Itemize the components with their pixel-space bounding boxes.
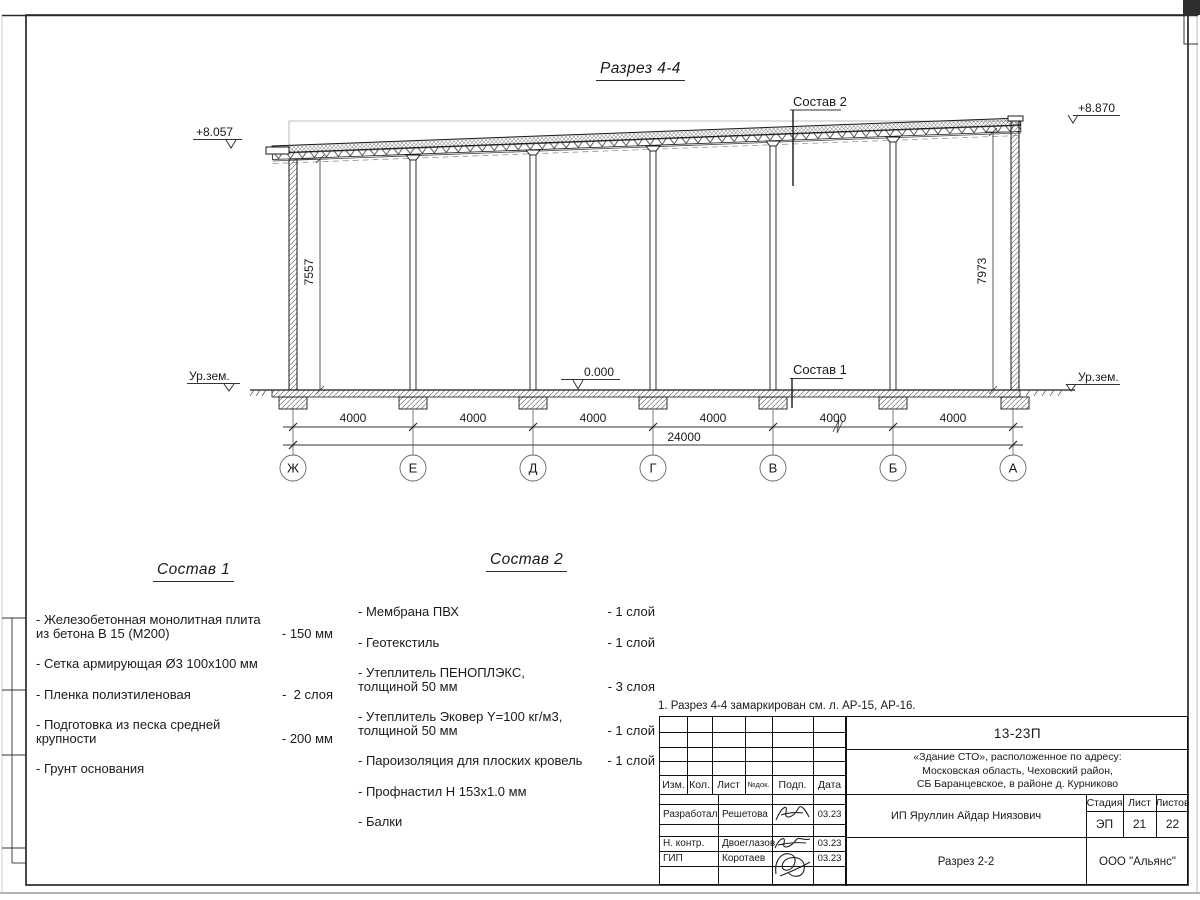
- svg-text:+8.057: +8.057: [196, 125, 233, 139]
- sostav2-heading: Состав 2: [486, 551, 567, 572]
- list-item: - Грунт основания: [36, 762, 333, 776]
- floor-slab: [250, 390, 1075, 409]
- layer-name: - Сетка армирующая Ø3 100х100 мм: [36, 657, 258, 671]
- layer-name: - Грунт основания: [36, 762, 144, 776]
- layer-qty: - 1 слой: [607, 636, 655, 650]
- parapet-cap: [1008, 116, 1023, 121]
- list-item: - Балки: [358, 815, 655, 829]
- title-block: Изм. Кол. Лист №док. Подп. Дата Разработ…: [659, 716, 1188, 885]
- list-item: - Железобетонная монолитная плита из бет…: [36, 613, 333, 640]
- dimension-chain: 4000 4000 4000 4000 4000 4000 24000: [283, 408, 1023, 456]
- list-header: Лист: [1123, 794, 1156, 811]
- layer-name: - Подготовка из песка средней крупности: [36, 718, 220, 745]
- rev-header-podp: Подп.: [772, 775, 813, 794]
- company-name: ООО "Альянс": [1086, 837, 1189, 886]
- level-mark-right: +8.870: [1068, 101, 1120, 123]
- left-margin-boxes: [2, 618, 26, 863]
- rev-header-list: Лист: [712, 775, 745, 794]
- layer-qty: - 200 мм: [282, 732, 333, 746]
- svg-text:Е: Е: [409, 461, 418, 476]
- roof-assembly: [272, 118, 1021, 164]
- callout-sostav1: Состав 1: [790, 362, 847, 408]
- svg-text:Д: Д: [529, 461, 538, 476]
- layer-name: - Утеплитель ПЕНОПЛЭКС, толщиной 50 мм: [358, 666, 525, 693]
- svg-text:4000: 4000: [820, 411, 847, 425]
- right-wall: [1011, 121, 1019, 390]
- signer-date: 03.23: [813, 836, 846, 851]
- svg-text:А: А: [1009, 461, 1018, 476]
- list-item: - Подготовка из песка средней крупности …: [36, 718, 333, 745]
- svg-text:4000: 4000: [460, 411, 487, 425]
- list-item: - Утеплитель Эковер Y=100 кг/м3, толщино…: [358, 710, 655, 737]
- svg-text:Ур.зем.: Ур.зем.: [1078, 370, 1119, 384]
- svg-text:Ур.зем.: Ур.зем.: [189, 369, 230, 383]
- layer-qty: - 1 слой: [607, 754, 655, 768]
- layer-name: - Мембрана ПВХ: [358, 605, 459, 619]
- rev-header-izm: Изм.: [660, 775, 687, 794]
- height-right-label: 7973: [975, 257, 989, 284]
- svg-text:Ж: Ж: [287, 461, 299, 476]
- svg-text:0.000: 0.000: [584, 365, 614, 379]
- sheet-number: 21: [1123, 811, 1156, 837]
- rev-header-kol: Кол.: [687, 775, 712, 794]
- layer-name: - Железобетонная монолитная плита из бет…: [36, 613, 261, 640]
- sheet-title: Разрез 2-2: [846, 837, 1086, 886]
- layer-name: - Пароизоляция для плоских кровель: [358, 754, 582, 768]
- layer-name: - Балки: [358, 815, 402, 829]
- list-item: - Геотекстиль - 1 слой: [358, 636, 655, 650]
- signer-role: Разработал: [660, 804, 721, 824]
- layer-name: - Утеплитель Эковер Y=100 кг/м3, толщино…: [358, 710, 562, 737]
- level-mark-zero: 0.000: [561, 365, 620, 389]
- sheets-total: 22: [1156, 811, 1189, 837]
- sostav2-list: - Мембрана ПВХ - 1 слой - Геотекстиль - …: [358, 605, 655, 846]
- list-item: - Пароизоляция для плоских кровель - 1 с…: [358, 754, 655, 768]
- signer-role: ГИП: [660, 851, 721, 866]
- svg-text:Состав 1: Состав 1: [793, 362, 847, 377]
- signer-date: 03.23: [813, 804, 846, 824]
- svg-text:Г: Г: [649, 461, 656, 476]
- list-item: - Пленка полиэтиленовая - 2 слоя: [36, 688, 333, 702]
- signer-name: Коротаев: [719, 851, 775, 866]
- stage-value: ЭП: [1086, 811, 1123, 837]
- layer-name: - Профнастил Н 153х1.0 мм: [358, 785, 527, 799]
- list-item: - Профнастил Н 153х1.0 мм: [358, 785, 655, 799]
- signer-date: 03.23: [813, 851, 846, 866]
- layer-name: - Пленка полиэтиленовая: [36, 688, 191, 702]
- height-left-label: 7557: [302, 258, 316, 285]
- signer-role: Н. контр.: [660, 836, 721, 851]
- signature: [770, 848, 814, 880]
- svg-text:Состав 2: Состав 2: [793, 94, 847, 109]
- svg-text:В: В: [769, 461, 778, 476]
- list-item: - Мембрана ПВХ - 1 слой: [358, 605, 655, 619]
- sheet-note: 1. Разрез 4-4 замаркирован см. л. АР-15,…: [658, 700, 916, 712]
- ground-level-left: Ур.зем.: [187, 369, 240, 391]
- project-name: «Здание СТО», расположенное по адресу: М…: [846, 749, 1189, 794]
- svg-text:4000: 4000: [340, 411, 367, 425]
- ground-level-right: Ур.зем.: [1066, 370, 1120, 391]
- sostav1-heading: Состав 1: [153, 561, 234, 582]
- stage-header: Стадия: [1086, 794, 1123, 811]
- columns: [406, 137, 900, 390]
- layer-qty: - 150 мм: [282, 627, 333, 641]
- svg-text:4000: 4000: [940, 411, 967, 425]
- corner-mark: [1183, 0, 1200, 15]
- client-name: ИП Яруллин Айдар Ниязович: [846, 794, 1086, 837]
- axis-bubbles: Ж Е Д Г В Б А: [280, 455, 1026, 481]
- layer-qty: - 1 слой: [607, 605, 655, 619]
- total-dimension: 24000: [667, 430, 701, 444]
- signer-name: Двоеглазов: [719, 836, 775, 851]
- doc-number: 13-23П: [846, 717, 1189, 749]
- sostav1-list: - Железобетонная монолитная плита из бет…: [36, 613, 333, 793]
- layer-qty: - 3 слоя: [608, 680, 655, 694]
- svg-text:4000: 4000: [580, 411, 607, 425]
- svg-text:Б: Б: [889, 461, 898, 476]
- layer-qty: - 2 слоя: [282, 688, 333, 702]
- list-item: - Утеплитель ПЕНОПЛЭКС, толщиной 50 мм -…: [358, 666, 655, 693]
- list-item: - Сетка армирующая Ø3 100х100 мм: [36, 657, 333, 671]
- eaves-edge: [266, 147, 289, 154]
- drawing-title: Разрез 4-4: [596, 60, 685, 81]
- listov-header: Листов: [1156, 794, 1189, 811]
- signature: [773, 803, 812, 824]
- rev-header-data: Дата: [813, 775, 846, 794]
- layer-qty: - 1 слой: [607, 724, 655, 738]
- layer-name: - Геотекстиль: [358, 636, 439, 650]
- signer-name: Решетова: [719, 804, 775, 824]
- svg-text:+8.870: +8.870: [1078, 101, 1115, 115]
- rev-header-doc: №док.: [745, 775, 772, 794]
- left-wall: [289, 159, 297, 390]
- level-mark-left: +8.057: [193, 125, 242, 148]
- svg-text:4000: 4000: [700, 411, 727, 425]
